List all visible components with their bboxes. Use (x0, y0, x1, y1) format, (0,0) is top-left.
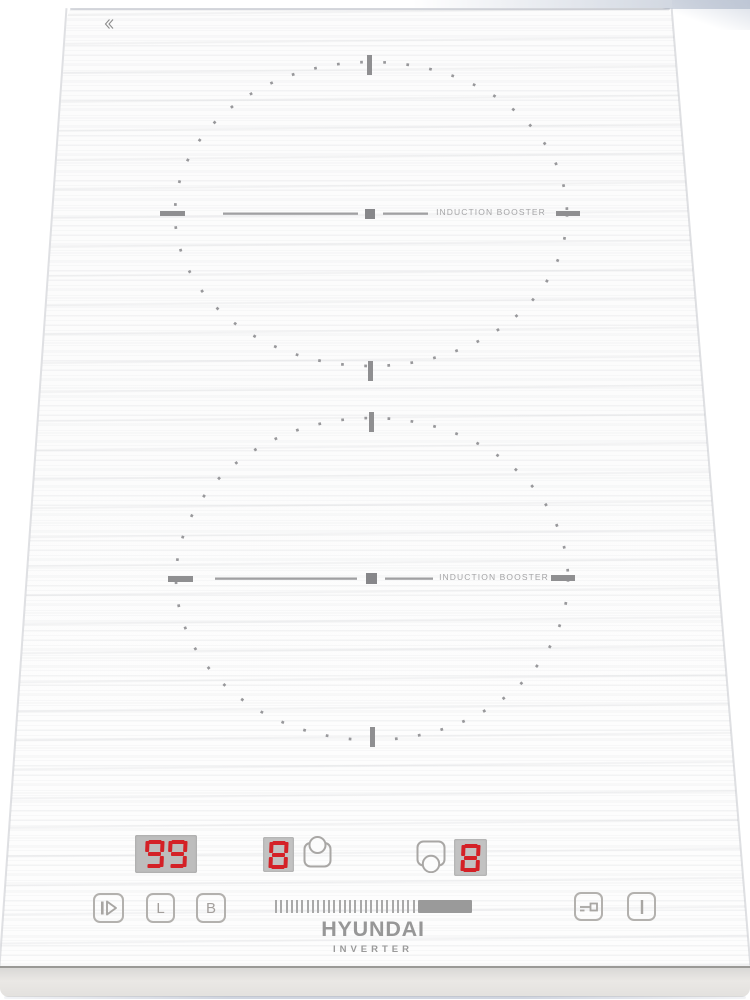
zone-center-line-right (383, 213, 428, 215)
zone-bottom-tick (370, 727, 375, 747)
zone-right-dash (551, 575, 575, 581)
slider-tick (349, 900, 351, 913)
slider-tick (280, 900, 282, 913)
surface-mark-icon (100, 16, 116, 32)
slider-tick (402, 900, 404, 913)
seven-segment-digit (167, 840, 187, 868)
zone-center-line-right (385, 578, 433, 580)
slider-tick (291, 900, 293, 913)
play-pause-icon (98, 899, 120, 917)
front-power-display (454, 839, 487, 876)
slider-tick (413, 900, 415, 913)
glass-top-edge (70, 8, 670, 10)
slider-tick (339, 900, 341, 913)
slider-tick (286, 900, 288, 913)
rear-power-display (263, 837, 294, 872)
background-corner-shadow (672, 0, 750, 30)
power-bar-icon (637, 898, 647, 916)
zone-right-dash (556, 211, 580, 216)
key-lock-button[interactable] (574, 892, 603, 921)
power-button[interactable] (627, 892, 656, 921)
slider-tick (354, 900, 356, 913)
lock-l-label: L (156, 900, 164, 917)
zone-left-dash (168, 576, 193, 582)
slider-tick (344, 900, 346, 913)
base-drop-shadow (4, 996, 746, 999)
power-slider[interactable] (275, 898, 475, 914)
brand-logo: HYUNDAI (273, 917, 473, 942)
zone-bottom-tick (368, 361, 373, 381)
cooking-zone-rear (160, 45, 590, 395)
booster-label-rear: INDUCTION BOOSTER (431, 207, 551, 217)
slider-tick (386, 900, 388, 913)
slider-tick (323, 900, 325, 913)
booster-b-button[interactable]: B (196, 893, 226, 923)
slider-tick (392, 900, 394, 913)
slider-tick (376, 900, 378, 913)
slider-tick (381, 900, 383, 913)
slider-tick (370, 900, 372, 913)
metal-base-strip (0, 966, 750, 997)
seven-segment-digit (460, 844, 480, 872)
zone-top-tick (367, 55, 372, 75)
key-icon (578, 898, 599, 916)
zone-top-tick (369, 412, 374, 432)
timer-display (135, 835, 197, 873)
pot-rear-icon (302, 836, 333, 869)
induction-hob-photo: INDUCTION BOOSTER INDUCTION BOOSTER L B (0, 0, 750, 1000)
seven-segment-digit (268, 841, 288, 869)
zone-center-square (366, 573, 377, 584)
slider-tick (360, 900, 362, 913)
slider-tick (301, 900, 303, 913)
slider-tick (296, 900, 298, 913)
slider-tick (397, 900, 399, 913)
pause-button[interactable] (93, 893, 124, 923)
slider-tick (275, 900, 277, 913)
pot-front-icon (415, 839, 447, 873)
slider-tick (328, 900, 330, 913)
zone-center-square (365, 209, 375, 219)
zone-left-dash (160, 211, 185, 216)
seven-segment-digit (144, 840, 164, 868)
power-slider-ticks (275, 900, 415, 913)
slider-tick (312, 900, 314, 913)
slider-tick (333, 900, 335, 913)
slider-tick (365, 900, 367, 913)
slider-tick (407, 900, 409, 913)
booster-label-front: INDUCTION BOOSTER (434, 572, 554, 582)
zone-center-line-left (223, 213, 358, 215)
lock-l-button[interactable]: L (146, 893, 175, 923)
booster-b-label: B (206, 900, 216, 917)
slider-tick (307, 900, 309, 913)
brand-subtitle: INVERTER (273, 944, 473, 955)
power-slider-fill (418, 900, 472, 913)
slider-tick (317, 900, 319, 913)
zone-center-line-left (215, 578, 357, 580)
